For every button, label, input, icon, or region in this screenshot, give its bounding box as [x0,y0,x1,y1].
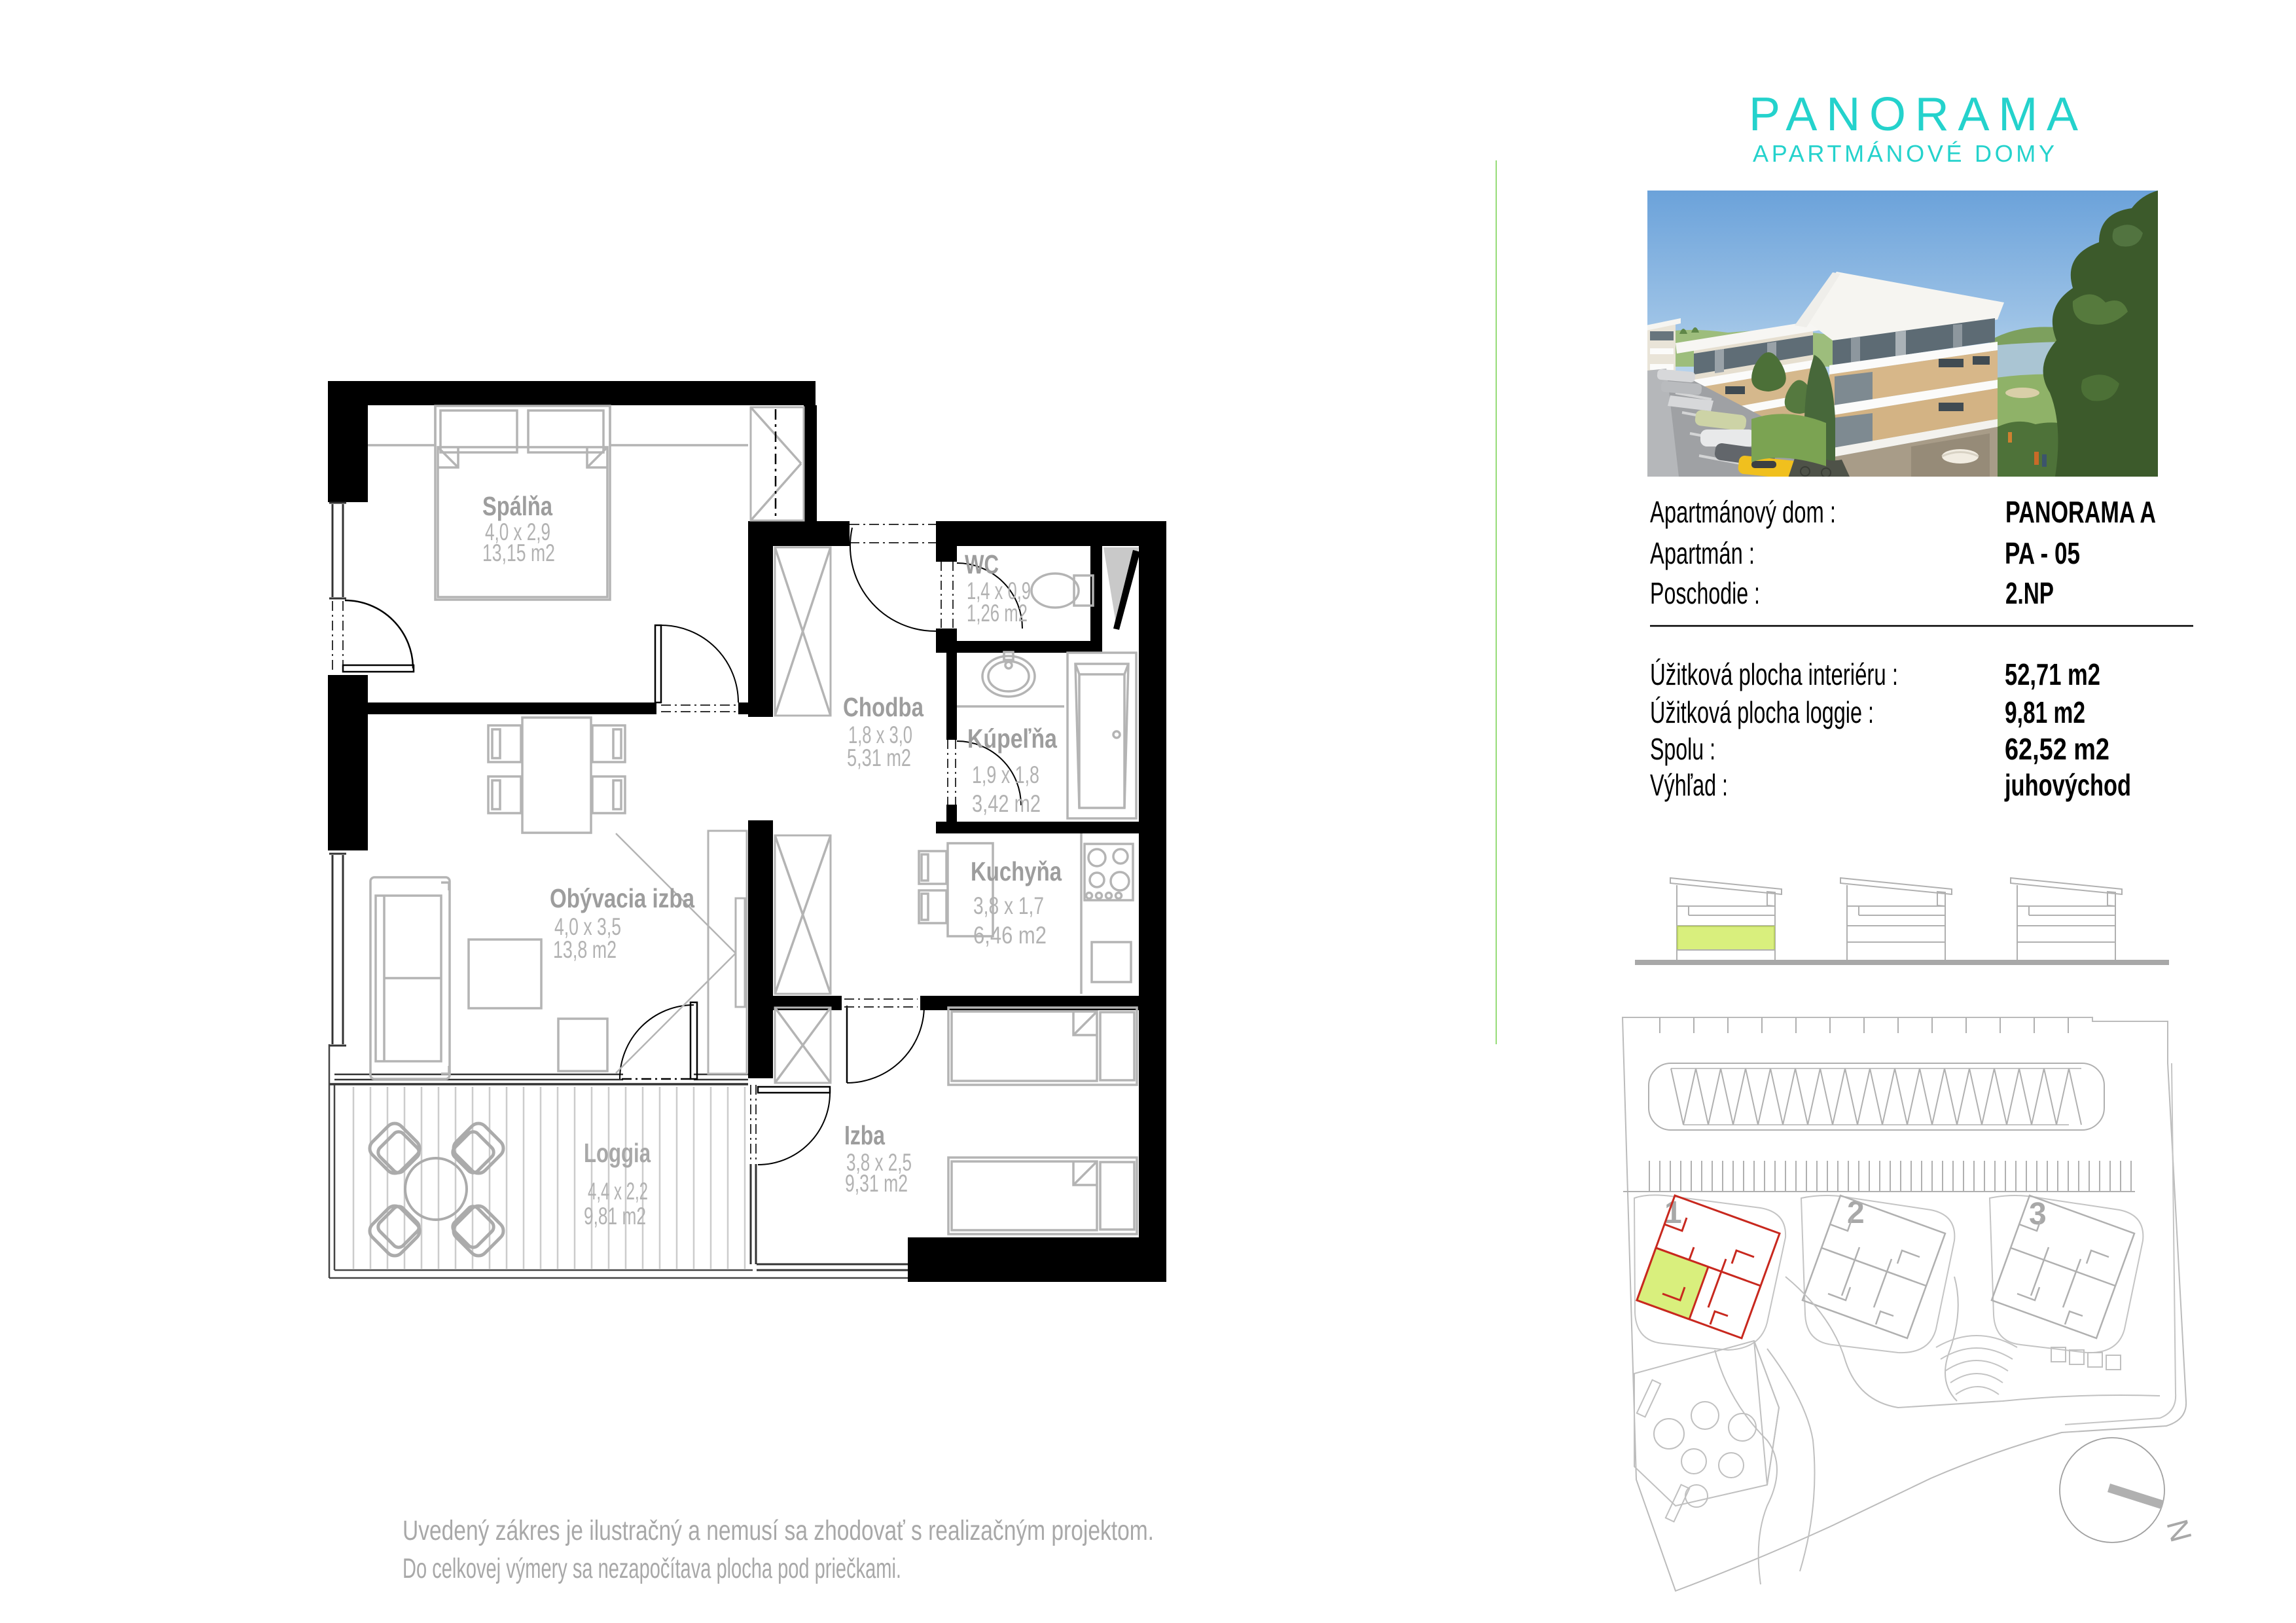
svg-text:Úžitková plocha loggie :: Úžitková plocha loggie : [1650,695,1874,729]
svg-text:62,52 m2: 62,52 m2 [2005,732,2109,766]
svg-text:PANORAMA: PANORAMA [1749,88,2078,141]
svg-text:Do celkovej výmery sa nezapočí: Do celkovej výmery sa nezapočítava ploch… [403,1553,901,1584]
svg-text:Izba: Izba [844,1120,886,1150]
svg-text:Poschodie :: Poschodie : [1650,576,1760,610]
svg-text:5,31 m2: 5,31 m2 [847,744,911,771]
svg-text:Kuchyňa: Kuchyňa [971,856,1062,886]
svg-text:13,8 m2: 13,8 m2 [553,936,617,963]
svg-text:Spálňa: Spálňa [482,491,553,521]
svg-text:Apartmánový dom :: Apartmánový dom : [1650,495,1836,529]
svg-text:3,42 m2: 3,42 m2 [972,790,1041,817]
svg-text:PA - 05: PA - 05 [2005,536,2080,570]
svg-text:Loggia: Loggia [584,1138,651,1168]
svg-text:Úžitková plocha interiéru :: Úžitková plocha interiéru : [1650,657,1898,691]
svg-text:2.NP: 2.NP [2005,576,2054,610]
svg-text:6,46 m2: 6,46 m2 [973,922,1047,949]
svg-text:1,9 x 1,8: 1,9 x 1,8 [972,761,1039,788]
svg-text:Kúpeľňa: Kúpeľňa [967,723,1058,754]
svg-text:N: N [2160,1516,2198,1546]
svg-text:WC: WC [965,549,999,579]
svg-text:4,4 x 2,2: 4,4 x 2,2 [588,1178,648,1205]
svg-text:Uvedený zákres je ilustračný a: Uvedený zákres je ilustračný a nemusí sa… [403,1515,1154,1546]
svg-text:Obývacia izba: Obývacia izba [550,883,695,913]
svg-text:1,26 m2: 1,26 m2 [967,600,1028,627]
svg-text:APARTMÁNOVÉ DOMY: APARTMÁNOVÉ DOMY [1753,140,2054,167]
svg-text:juhovýchod: juhovýchod [2004,768,2131,802]
svg-text:13,15 m2: 13,15 m2 [482,539,555,566]
svg-text:Apartmán :: Apartmán : [1650,536,1755,570]
svg-text:9,81 m2: 9,81 m2 [2005,695,2085,729]
svg-text:PANORAMA A: PANORAMA A [2005,495,2156,529]
svg-text:Spolu :: Spolu : [1650,732,1715,766]
svg-text:Výhľad :: Výhľad : [1650,768,1728,802]
svg-text:9,31 m2: 9,31 m2 [845,1170,908,1197]
svg-text:Chodba: Chodba [843,692,924,722]
svg-text:9,81 m2: 9,81 m2 [584,1203,646,1230]
svg-text:3,8 x 1,7: 3,8 x 1,7 [973,892,1044,919]
svg-text:52,71 m2: 52,71 m2 [2005,657,2100,691]
